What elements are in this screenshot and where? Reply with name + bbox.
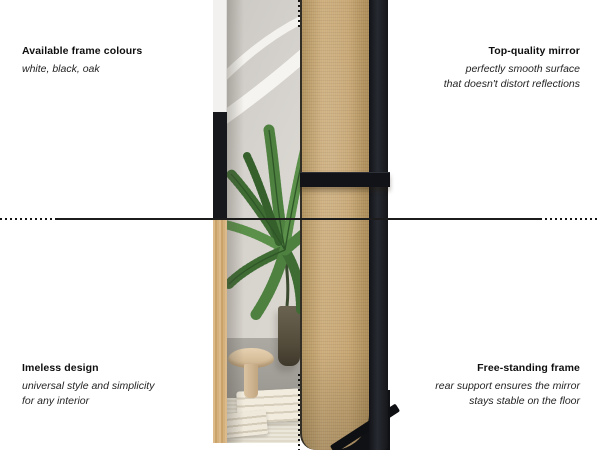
horizontal-guide-dotted-right [540,218,600,220]
mirror-glass-reflection [227,0,300,443]
mirror-front-view [213,0,300,443]
annotation-title: Available frame colours [22,44,142,59]
annotation-frame-colours: Available frame colours white, black, oa… [22,44,142,77]
annotation-line: rear support ensures the mirror [435,379,580,394]
horizontal-guide-solid [57,218,540,220]
annotation-title: Imeless design [22,361,154,376]
rear-support-bracket [300,172,390,187]
annotation-free-standing: Free-standing frame rear support ensures… [435,361,580,408]
vertical-guide-dotted-top [298,0,300,29]
annotation-design: Imeless design universal style and simpl… [22,361,154,408]
frame-segment-white [213,0,227,112]
mirror-back-view [300,0,390,450]
glass-edge-shadow [227,0,244,443]
annotation-line: universal style and simplicity [22,379,154,394]
vertical-guide-dotted-bottom [298,374,300,450]
annotation-line: white, black, oak [22,62,142,77]
annotation-title: Top-quality mirror [444,44,580,59]
frame-segment-oak [213,219,227,443]
annotation-line: that doesn't distort reflections [444,77,580,92]
annotation-mirror-quality: Top-quality mirror perfectly smooth surf… [444,44,580,91]
mirror-frame-colour-samples [213,0,227,443]
horizontal-guide-dotted-left [0,218,57,220]
product-infographic: Available frame colours white, black, oa… [0,0,600,450]
annotation-line: perfectly smooth surface [444,62,580,77]
annotation-title: Free-standing frame [435,361,580,376]
stool-leg [244,364,258,398]
black-frame-edge [369,0,388,450]
annotation-line: for any interior [22,394,154,409]
annotation-line: stays stable on the floor [435,394,580,409]
mdf-back-board [300,0,369,450]
frame-segment-black [213,112,227,219]
